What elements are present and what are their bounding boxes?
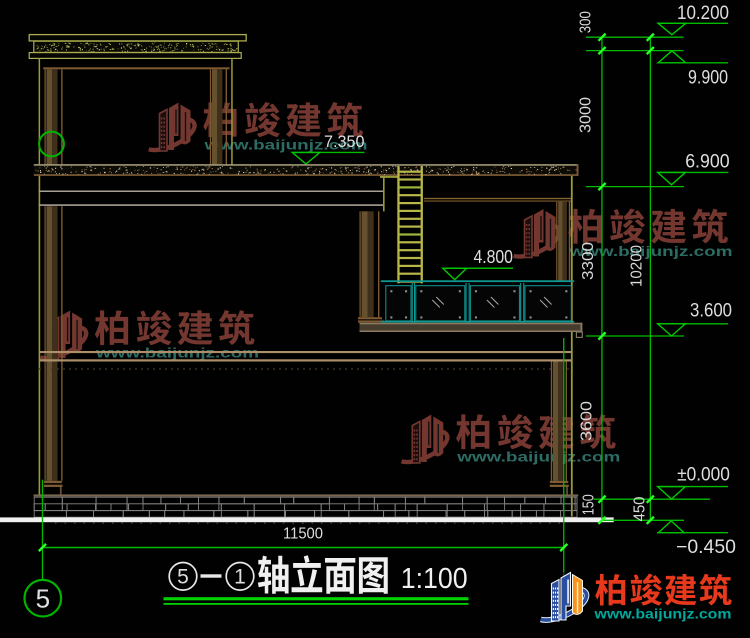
- svg-text:3000: 3000: [578, 97, 595, 133]
- svg-text:www.baijunjz.com: www.baijunjz.com: [456, 450, 620, 465]
- svg-text:1:100: 1:100: [401, 563, 468, 595]
- svg-text:9.900: 9.900: [688, 68, 728, 89]
- svg-text:±0.000: ±0.000: [677, 465, 730, 486]
- svg-text:7.350: 7.350: [324, 132, 365, 151]
- svg-text:4.800: 4.800: [473, 247, 513, 267]
- svg-text:www.baijunjz.com: www.baijunjz.com: [593, 607, 731, 622]
- svg-text:3600: 3600: [579, 401, 596, 441]
- svg-text:1: 1: [234, 566, 246, 589]
- svg-text:3.600: 3.600: [690, 301, 732, 322]
- svg-text:−0.450: −0.450: [676, 537, 736, 558]
- svg-text:5: 5: [36, 583, 50, 613]
- svg-text:6.900: 6.900: [685, 151, 729, 172]
- svg-text:450: 450: [631, 496, 648, 521]
- svg-text:10200: 10200: [629, 245, 646, 287]
- svg-text:150: 150: [580, 494, 597, 515]
- svg-text:3300: 3300: [580, 242, 597, 280]
- svg-text:11500: 11500: [283, 525, 323, 542]
- svg-text:5: 5: [177, 566, 189, 589]
- svg-text:10.200: 10.200: [677, 3, 729, 24]
- svg-text:300: 300: [577, 11, 594, 33]
